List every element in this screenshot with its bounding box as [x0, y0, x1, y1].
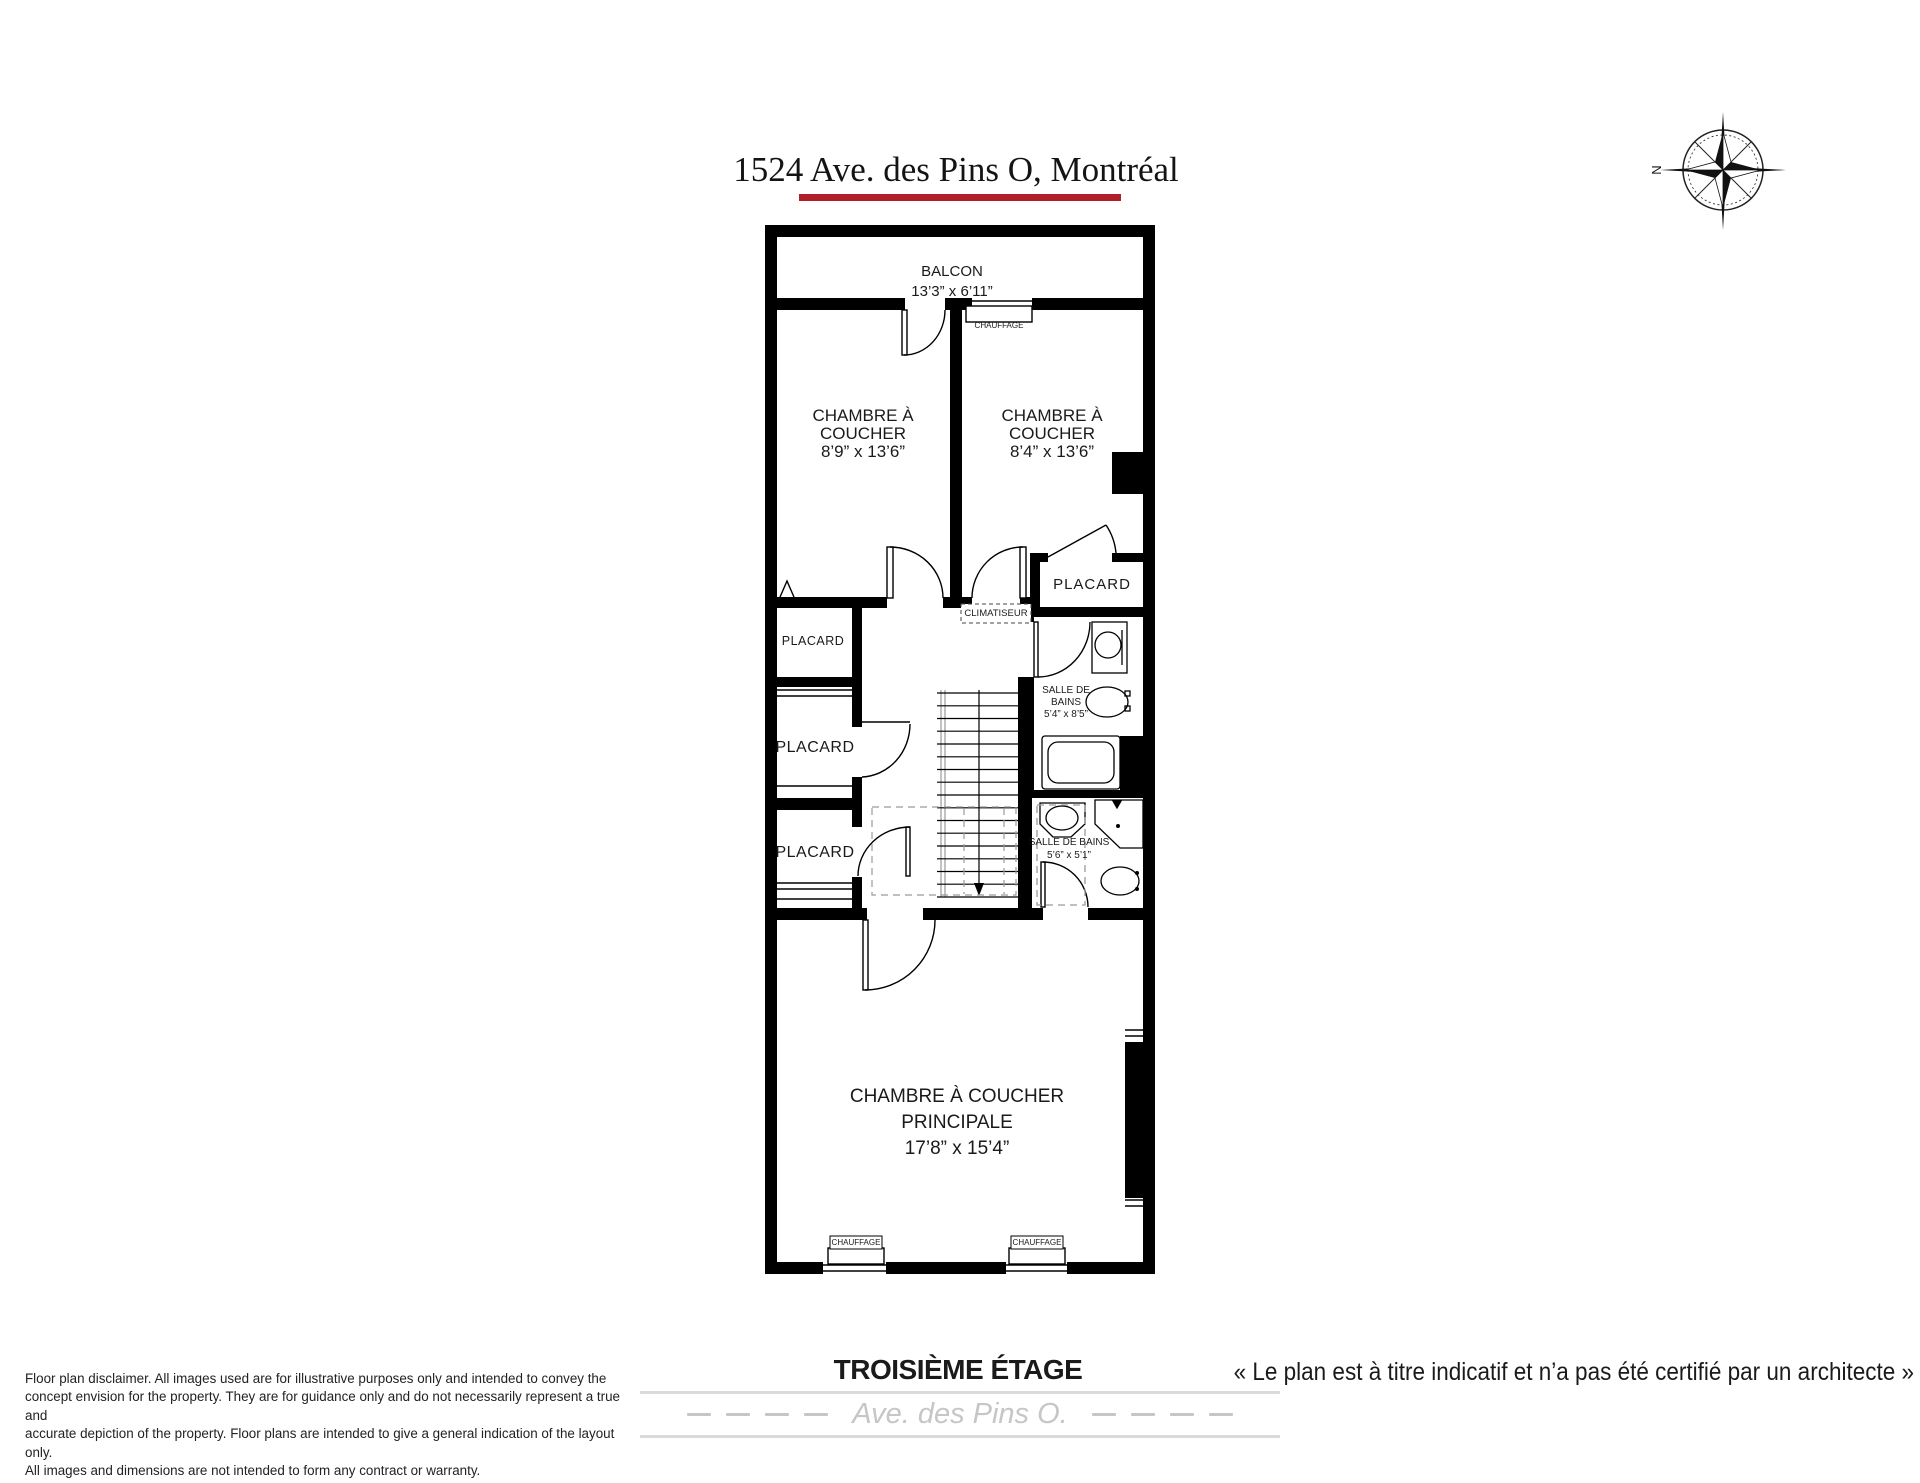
toilet-icon	[1086, 687, 1130, 717]
floor-title: TROISIÈME ÉTAGE	[834, 1356, 1083, 1384]
bedroom-right-dimensions: 8’4” x 13’6”	[1010, 443, 1094, 460]
street-band: Ave. des Pins O.	[640, 1391, 1280, 1438]
disclaimer-line-3: accurate depiction of the property. Floo…	[25, 1425, 625, 1462]
bedroom-left-dimensions: 8’9” x 13’6”	[821, 443, 905, 460]
street-dash	[687, 1413, 711, 1417]
street-dash	[726, 1413, 750, 1417]
closet-left-2-label: PLACARD	[775, 740, 854, 756]
street-dashes-right	[1092, 1413, 1233, 1417]
bathroom-lower-label: SALLE DE BAINS	[1029, 838, 1110, 848]
closet-left-3-label: PLACARD	[775, 845, 854, 861]
disclaimer-line-1: Floor plan disclaimer. All images used a…	[25, 1370, 625, 1388]
street-dash	[765, 1413, 789, 1417]
chauffage-label-top: CHAUFFAGE	[975, 322, 1024, 330]
balcony-label: BALCON	[921, 264, 983, 279]
sink-icon	[1092, 622, 1127, 673]
bedroom-left-label-line1: CHAMBRE À	[812, 407, 913, 424]
bedroom-right-label-line1: CHAMBRE À	[1001, 407, 1102, 424]
stairs-down-arrow	[974, 883, 984, 896]
bathtub-icon	[1042, 736, 1120, 789]
toilet-icon	[1101, 867, 1139, 895]
master-bedroom-dimensions: 17’8” x 15’4”	[905, 1139, 1010, 1158]
bedroom-left-label-line2: COUCHER	[820, 425, 906, 442]
street-dash	[1209, 1413, 1233, 1417]
street-dash	[1170, 1413, 1194, 1417]
architect-note: « Le plan est à titre indicatif et n’a p…	[1234, 1358, 1914, 1387]
floor-plan-drawing: N	[0, 0, 1920, 1483]
staircase	[872, 690, 1018, 897]
bathroom-upper-label-line2: BAINS	[1051, 698, 1081, 708]
street-dash	[1092, 1413, 1116, 1417]
bathroom-upper-label-line1: SALLE DE	[1042, 686, 1090, 696]
compass-rose-icon: N	[1649, 112, 1786, 230]
bathroom-upper-dimensions: 5’4” x 8’5”	[1044, 710, 1088, 720]
balcony-dimensions: 13’3” x 6’11”	[911, 284, 992, 299]
street-dash	[1131, 1413, 1155, 1417]
floor-plan-page: 1524 Ave. des Pins O, Montréal	[0, 0, 1920, 1483]
chauffage-label-bottom-right: CHAUFFAGE	[1013, 1239, 1062, 1247]
disclaimer-line-2: concept envision for the property. They …	[25, 1388, 625, 1425]
closet-left-1-label: PLACARD	[782, 635, 845, 648]
sink-icon	[1040, 803, 1085, 837]
bathroom-lower-dimensions: 5’6” x 5’1”	[1047, 851, 1091, 861]
street-dashes-left	[687, 1413, 828, 1417]
bedroom-right-label-line2: COUCHER	[1009, 425, 1095, 442]
disclaimer-line-4: All images and dimensions are not intend…	[25, 1462, 625, 1480]
closet-top-right-label: PLACARD	[1053, 577, 1131, 592]
master-bedroom-label-line1: CHAMBRE À COUCHER	[850, 1087, 1064, 1106]
disclaimer-text: Floor plan disclaimer. All images used a…	[25, 1370, 625, 1480]
climatiseur-label: CLIMATISEUR	[964, 609, 1027, 619]
master-bedroom-label-line2: PRINCIPALE	[901, 1113, 1013, 1132]
chauffage-label-bottom-left: CHAUFFAGE	[832, 1239, 881, 1247]
street-label: Ave. des Pins O.	[852, 1398, 1067, 1431]
street-dash	[804, 1413, 828, 1417]
compass-north-label: N	[1649, 165, 1664, 174]
